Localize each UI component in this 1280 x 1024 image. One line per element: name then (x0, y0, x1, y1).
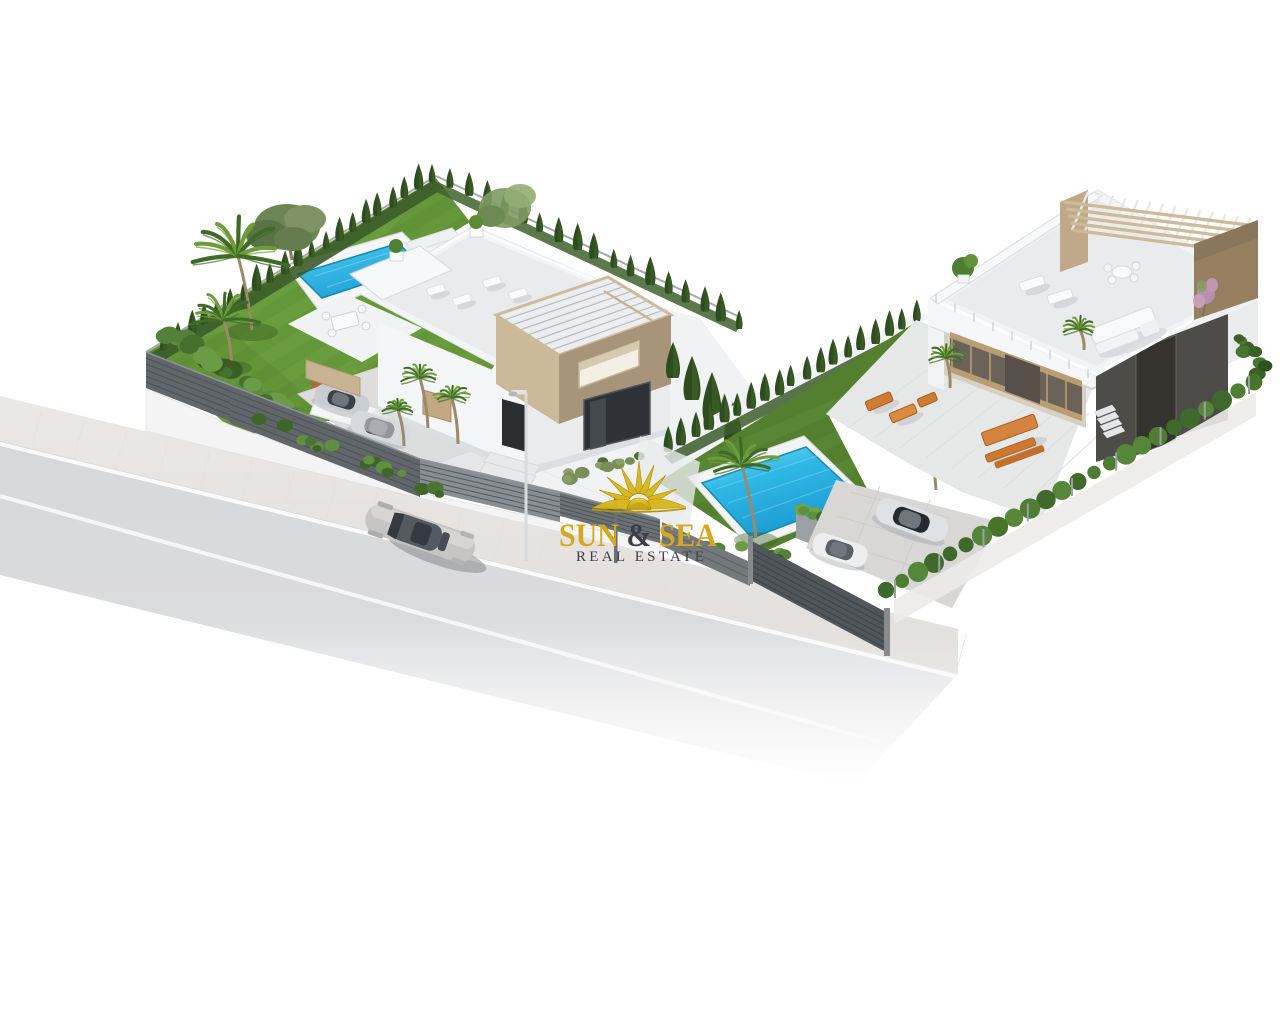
svg-text:REAL ESTATE: REAL ESTATE (576, 549, 704, 565)
